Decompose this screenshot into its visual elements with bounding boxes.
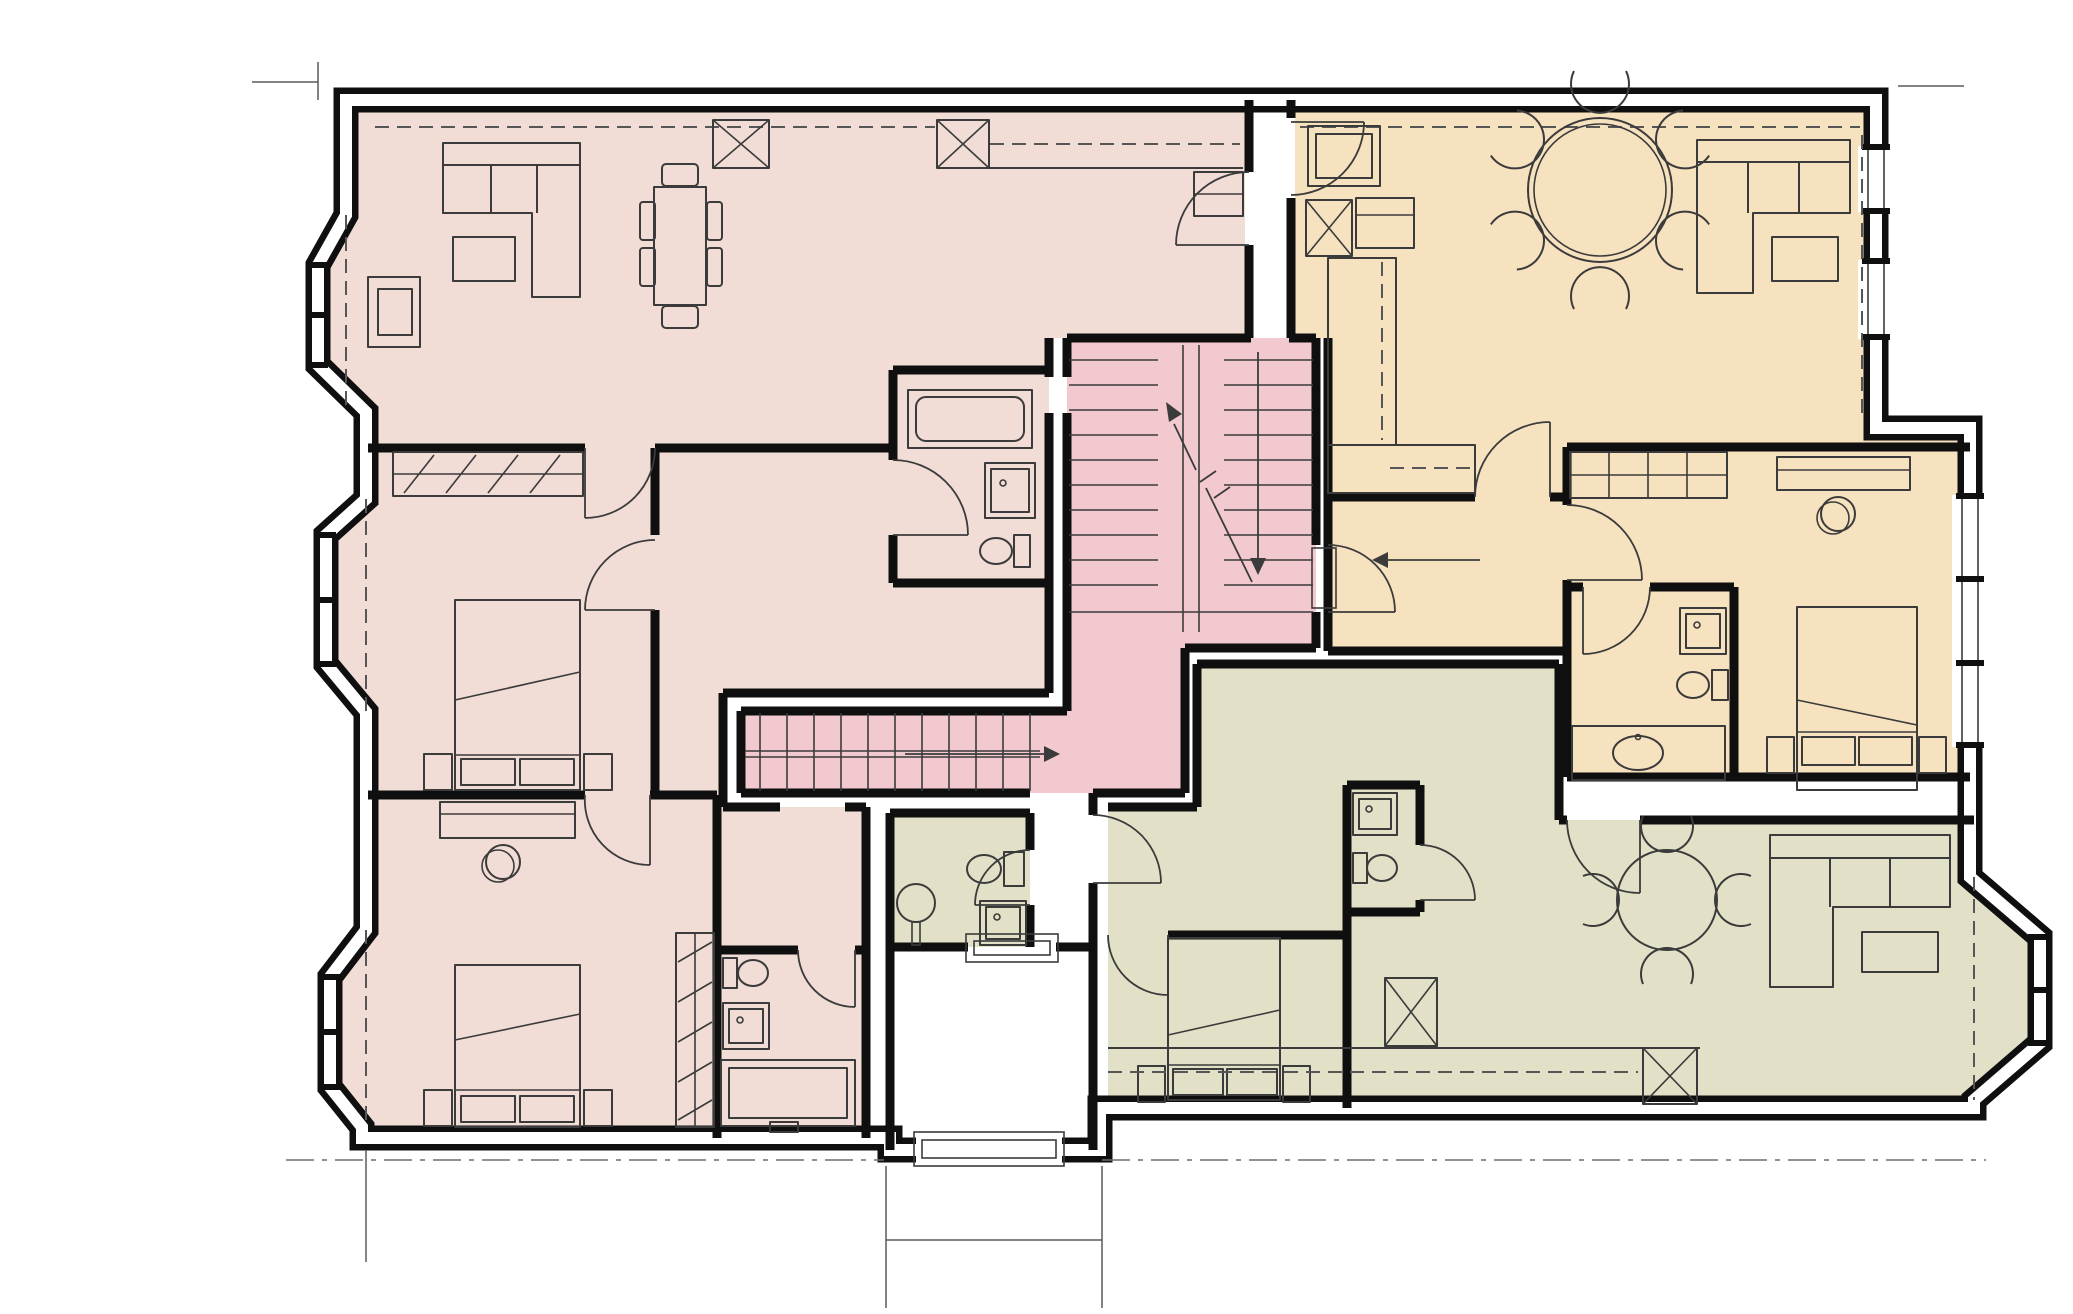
boundary-tick-top-left: [252, 62, 318, 100]
flat-3-bathroom-region: [890, 813, 1030, 947]
entrance-opening: [916, 1130, 1062, 1170]
right-window-1: [1858, 144, 1894, 214]
floor-plan-drawing: [0, 0, 2073, 1314]
entrance-footpath: [886, 1166, 1102, 1308]
right-window-band: [1952, 493, 1988, 748]
flat-regions: [318, 100, 2040, 1138]
right-window-2: [1858, 258, 1894, 340]
floor-plan-page: [0, 0, 2073, 1314]
